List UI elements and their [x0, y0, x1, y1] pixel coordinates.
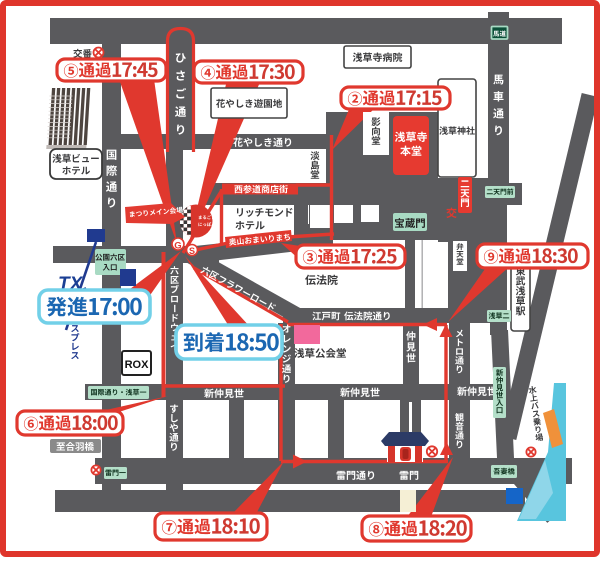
- svg-text:G: G: [174, 241, 181, 252]
- svg-text:ROX: ROX: [125, 359, 150, 371]
- svg-text:S: S: [189, 246, 195, 256]
